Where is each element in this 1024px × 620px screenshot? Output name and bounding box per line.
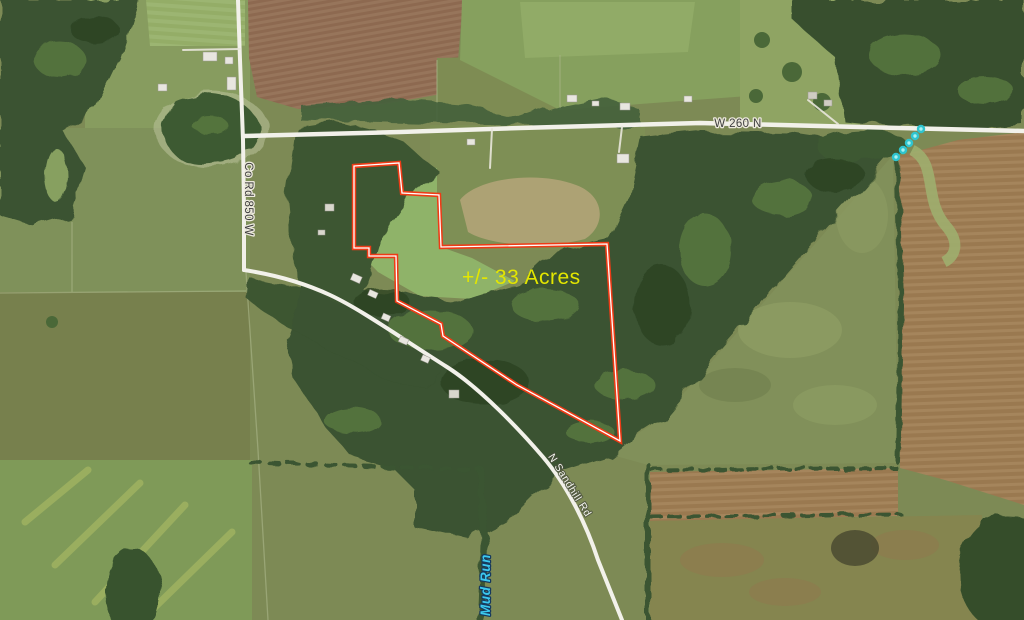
aerial-property-map: W 260 N Co Rd 850 W N Sandhill Rd Mud Ru… xyxy=(0,0,1024,620)
acreage-label: +/- 33 Acres xyxy=(462,266,581,289)
stream-dot xyxy=(899,146,907,154)
stream-dot xyxy=(892,153,900,161)
road-label-co-rd-850-w: Co Rd 850 W xyxy=(242,162,254,235)
road-label-w-260-n: W 260 N xyxy=(714,118,762,130)
dirt-patch xyxy=(460,178,600,245)
stream-dot xyxy=(911,132,919,140)
brown-field-right xyxy=(899,132,1024,505)
plowed-field-top xyxy=(248,0,463,109)
stream-label-mud-run: Mud Run xyxy=(478,554,493,616)
satellite-map-canvas: W 260 N Co Rd 850 W N Sandhill Rd Mud Ru… xyxy=(0,0,1024,620)
stream-dot xyxy=(917,125,925,133)
stream-dot xyxy=(905,139,913,147)
